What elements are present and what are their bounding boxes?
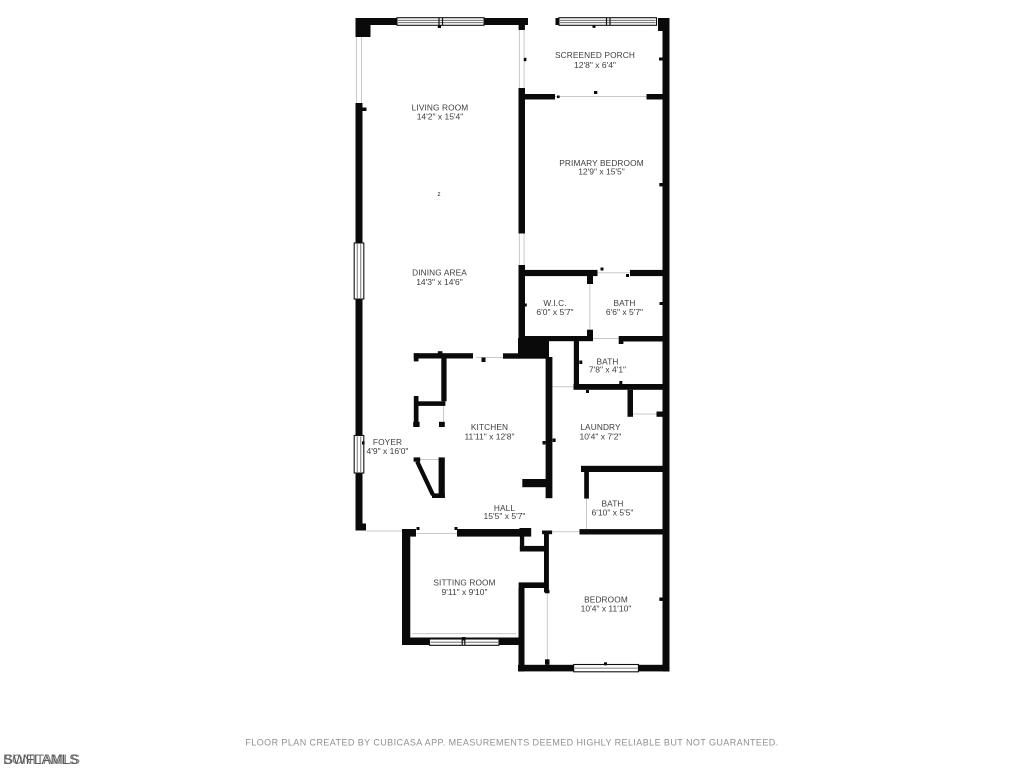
svg-text:FLOOR PLAN CREATED BY CUBICASA: FLOOR PLAN CREATED BY CUBICASA APP. MEAS… [245,738,778,748]
svg-text:10'4" x 11'10": 10'4" x 11'10" [581,603,632,613]
svg-text:KITCHEN: KITCHEN [471,422,508,432]
svg-text:6'10" x 5'5": 6'10" x 5'5" [592,508,634,518]
svg-text:12'8" x 6'4": 12'8" x 6'4" [574,60,616,70]
svg-text:7'8" x 4'1": 7'8" x 4'1" [589,364,626,374]
svg-text:6'0" x 5'7": 6'0" x 5'7" [536,307,573,317]
svg-text:12'9" x 15'5": 12'9" x 15'5" [578,167,625,177]
svg-text:14'2" x 15'4": 14'2" x 15'4" [417,112,464,122]
svg-text:10'4" x 7'2": 10'4" x 7'2" [580,432,622,442]
svg-text:DINING AREA: DINING AREA [412,268,467,278]
svg-text:11'11" x 12'8": 11'11" x 12'8" [464,432,514,442]
svg-text:9'11" x 9'10": 9'11" x 9'10" [442,587,488,597]
svg-text:LAUNDRY: LAUNDRY [580,422,621,432]
svg-text:SCREENED PORCH: SCREENED PORCH [555,50,635,60]
svg-text:z: z [438,192,441,198]
svg-text:6'6" x 5'7": 6'6" x 5'7" [606,307,643,317]
svg-text:14'3" x 14'6": 14'3" x 14'6" [416,277,463,287]
svg-text:SITTING ROOM: SITTING ROOM [433,578,495,588]
svg-text:15'5" x 5'7": 15'5" x 5'7" [484,511,526,521]
svg-text:BONITAMLS: BONITAMLS [3,752,80,767]
svg-text:4'9" x 16'0": 4'9" x 16'0" [367,446,409,456]
